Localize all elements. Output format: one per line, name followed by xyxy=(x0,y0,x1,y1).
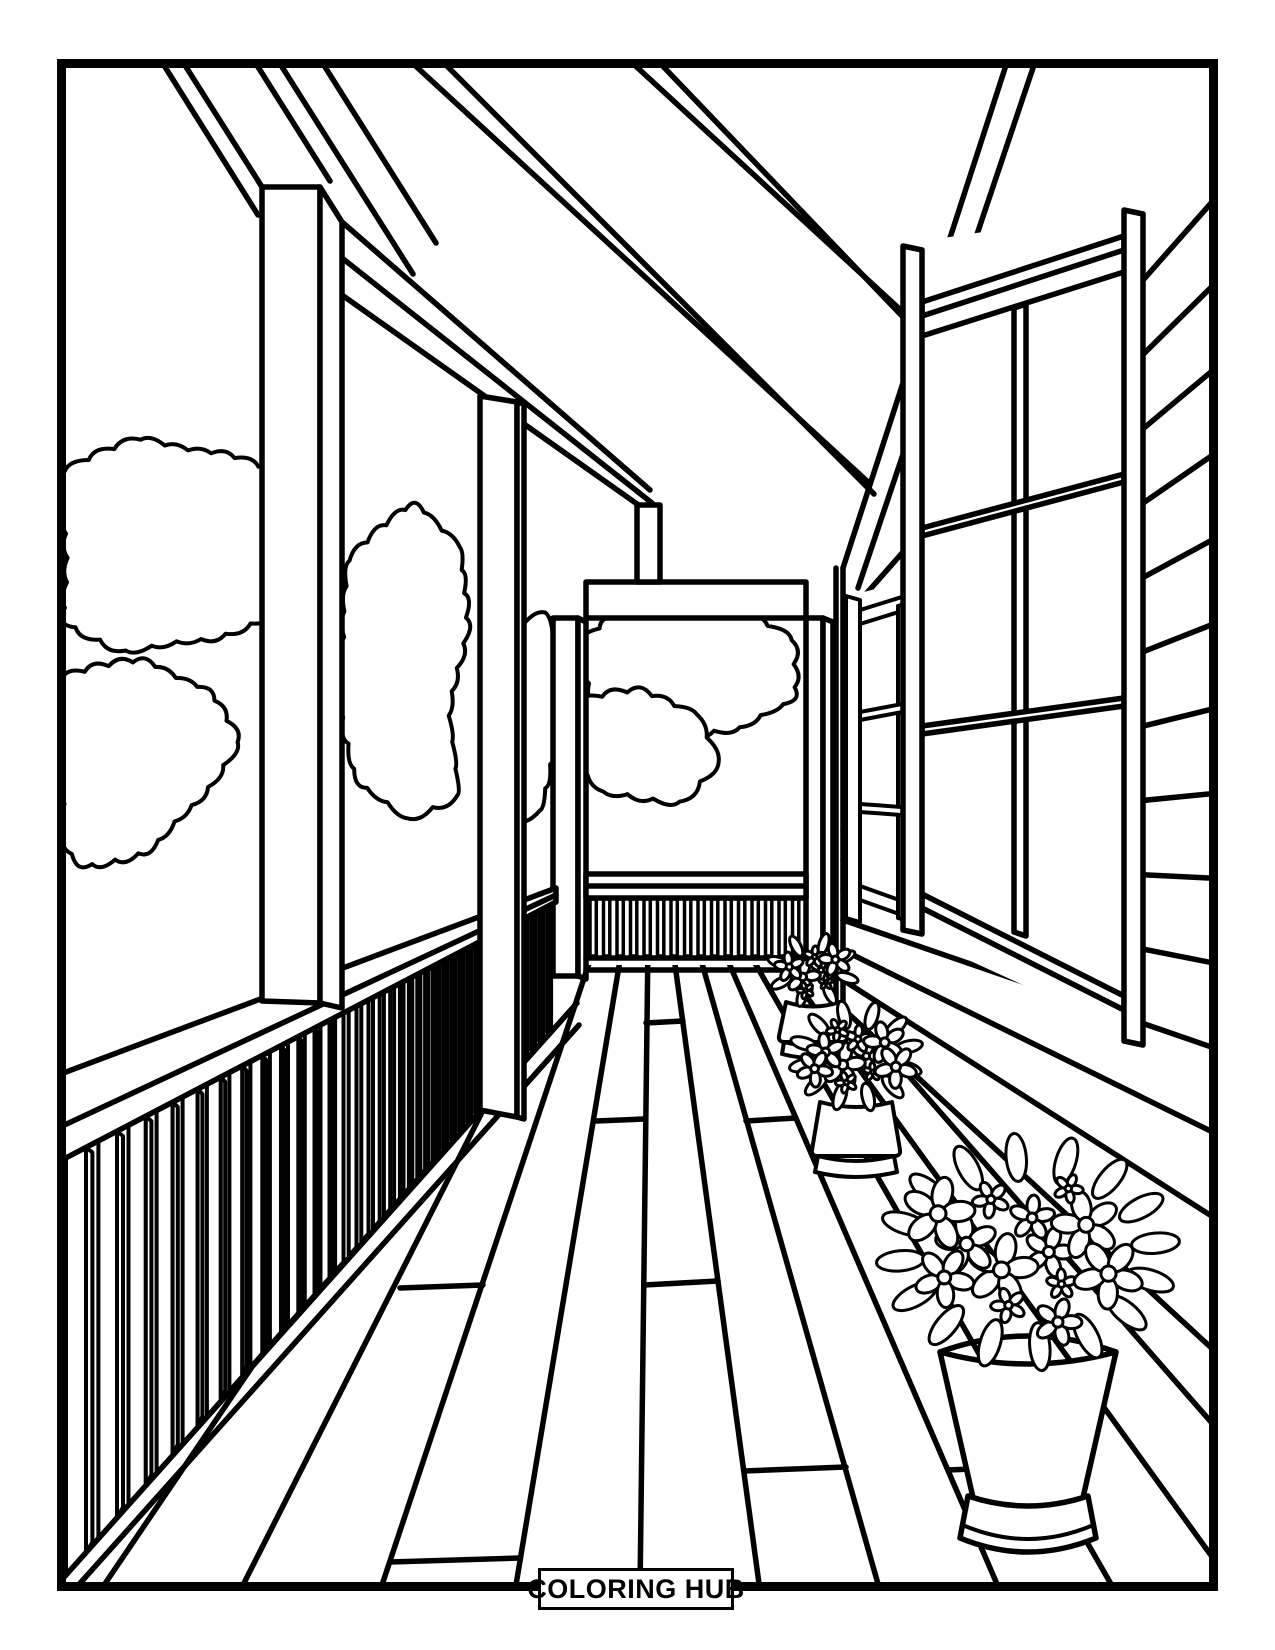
background-bushes xyxy=(56,438,799,868)
brand-badge: COLORING HUB xyxy=(538,1568,734,1610)
near-window xyxy=(903,208,1143,1045)
brand-label: COLORING HUB xyxy=(527,1574,745,1605)
flower-pot-large xyxy=(876,1133,1181,1552)
porch-illustration xyxy=(0,0,1275,1650)
coloring-page: COLORING HUB xyxy=(0,0,1275,1650)
